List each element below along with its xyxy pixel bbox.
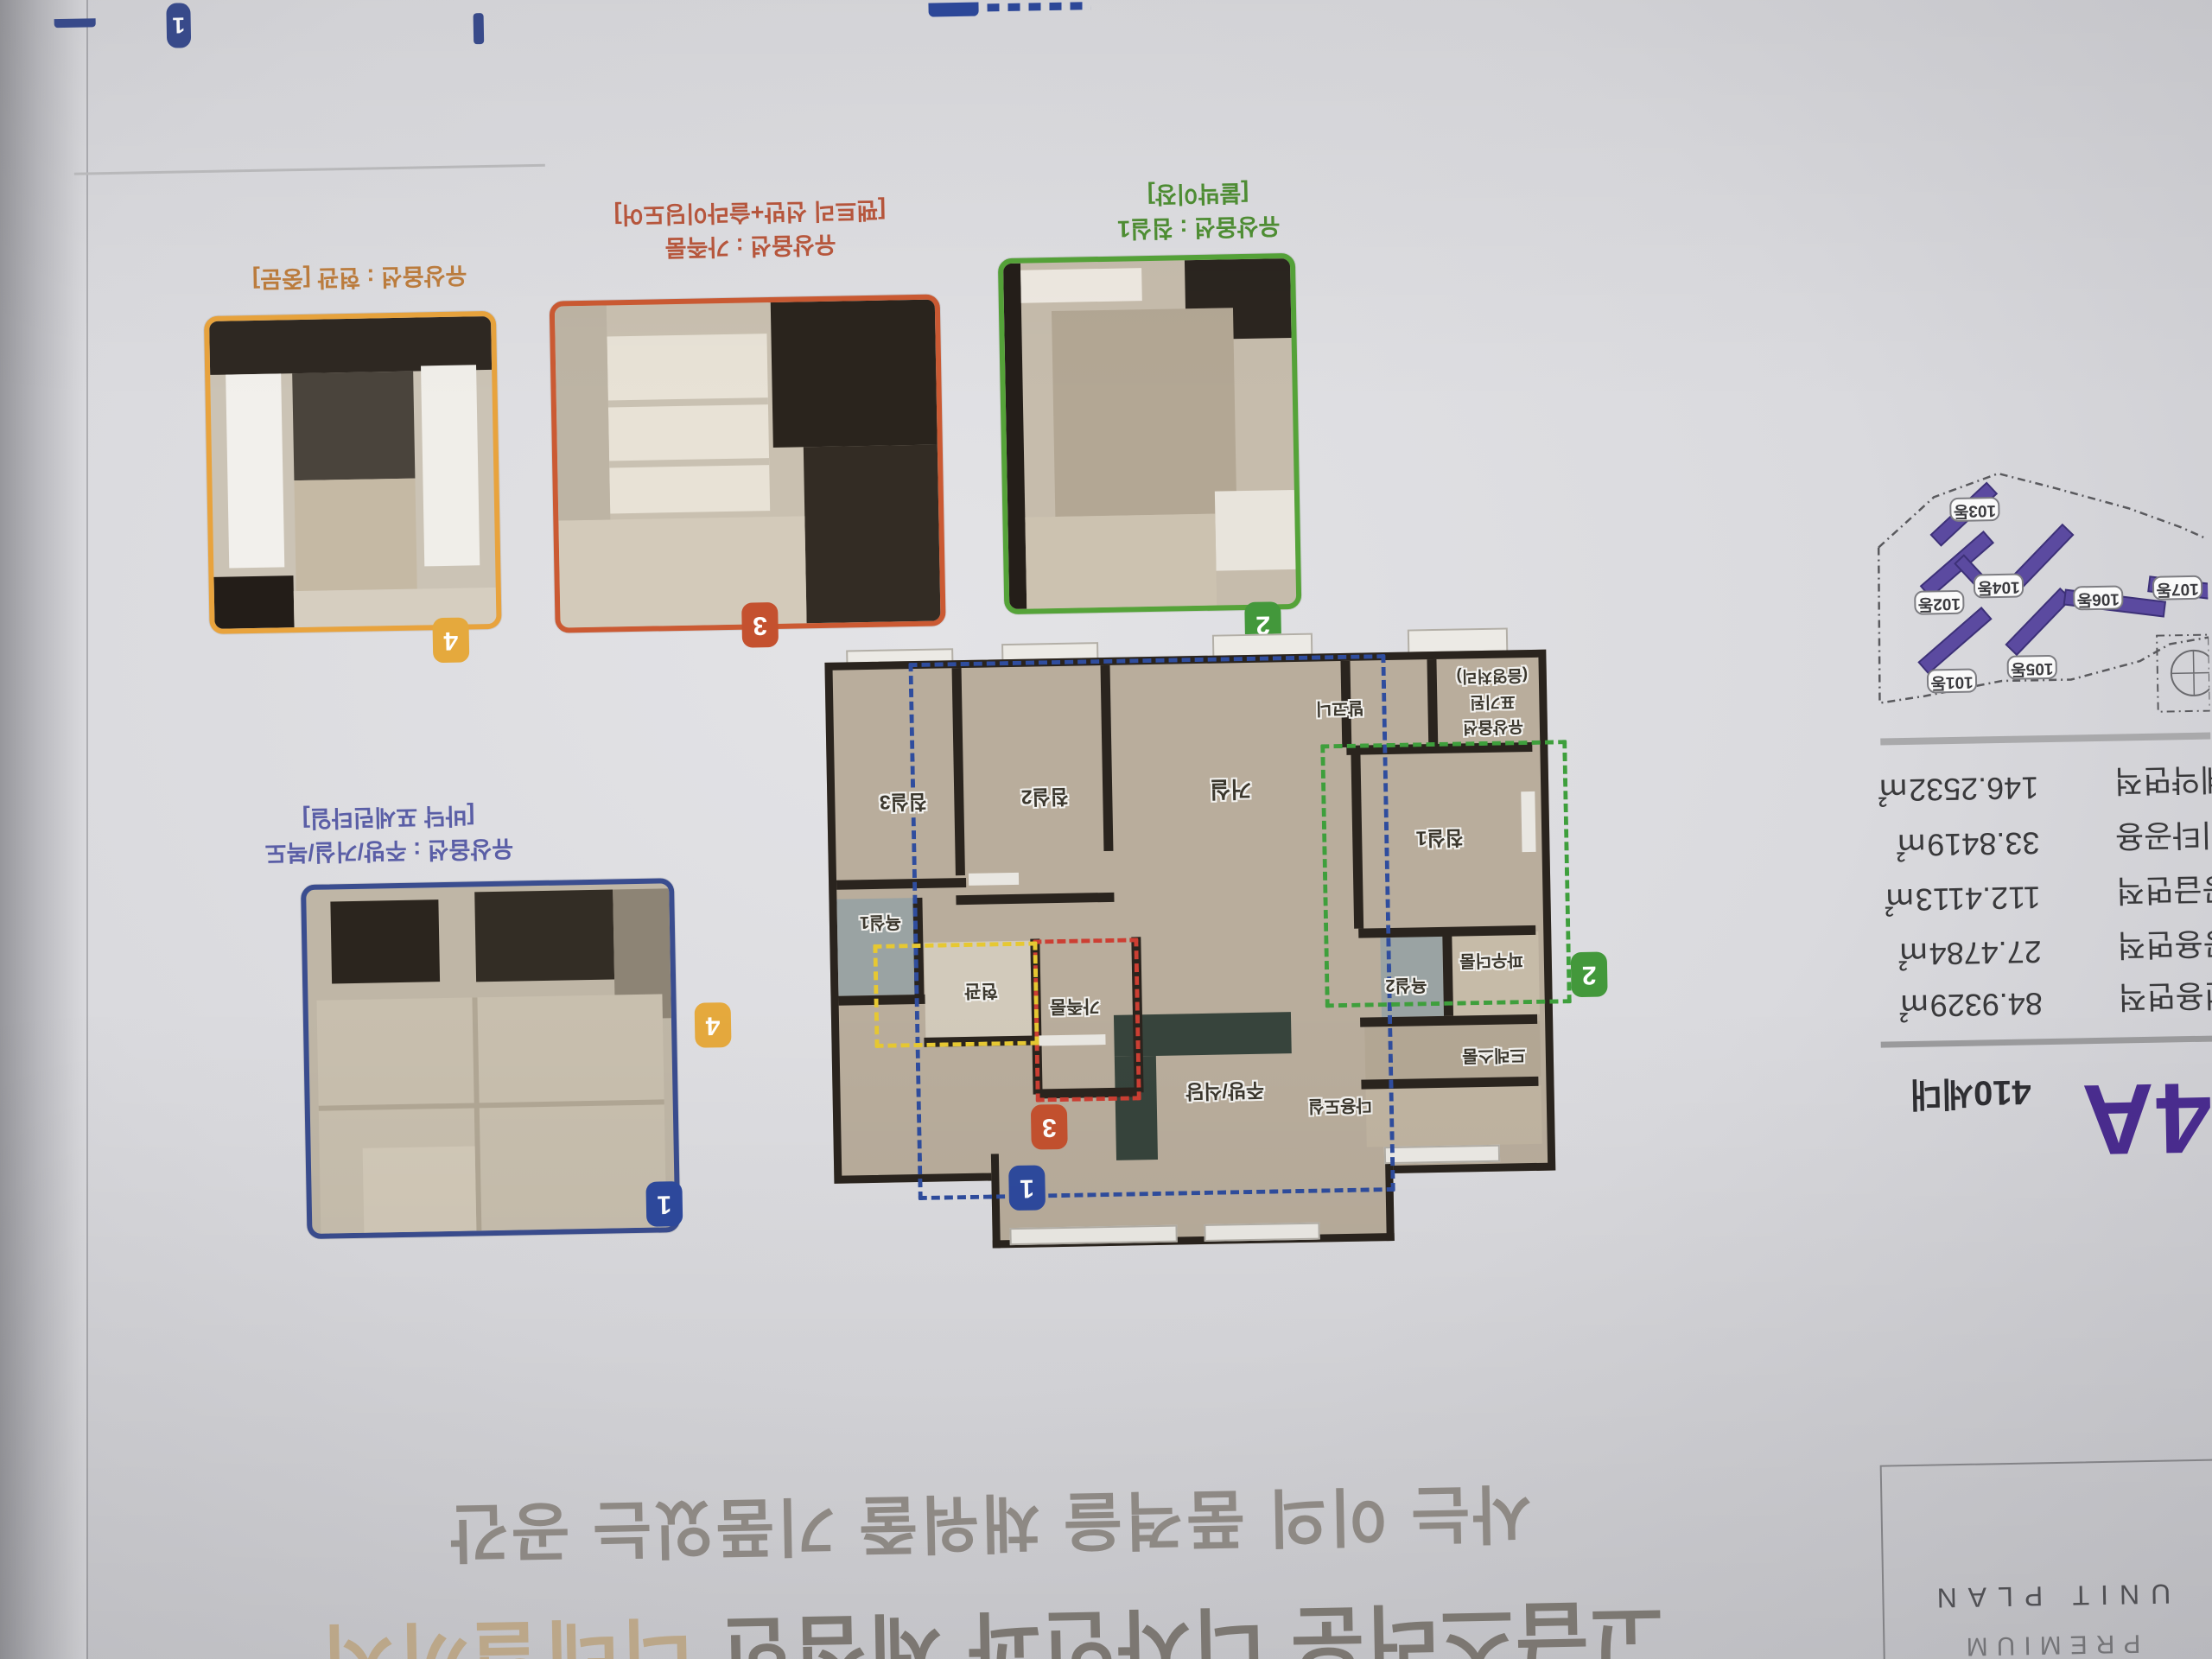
region-badge-3: 3 [1031, 1104, 1068, 1150]
photo-bedroom1-detail [1052, 308, 1236, 517]
plan-option-annotation: 유상옵션 표기된 (음영처리) [1419, 661, 1567, 740]
unit-plan-title: UNIT PLAN [1892, 1577, 2204, 1615]
photo-badge-1: 1 [645, 1181, 683, 1227]
area-value: 27.4784㎡ [1825, 931, 2042, 981]
photo-badge-1-label: 1 [657, 1190, 671, 1218]
room-label-dress: 드레스룸 [1416, 1043, 1573, 1071]
building-pill-103: 103동 [1949, 497, 2000, 522]
building-pill-101: 101동 [1927, 669, 1978, 694]
window-strip [1009, 1225, 1177, 1246]
site-boundary [1878, 470, 2207, 548]
top-edge-dashes [987, 2, 1090, 11]
area-label: 공용면적 [2015, 923, 2212, 972]
area-label: 기타공용 [2013, 814, 2212, 863]
section-divider-rule [74, 164, 545, 175]
area-label: 전용면적 [2016, 975, 2212, 1024]
photo-entrance-detail [421, 365, 480, 566]
region-badge-2: 2 [1571, 951, 1608, 997]
caption-bedroom1-line1: 유상옵션 : 침실1 [1052, 207, 1346, 246]
caption-entrance-option: 유상옵션 : 현관 [중문] [217, 257, 503, 296]
photo-badge-3: 3 [741, 602, 779, 648]
photo-floor-detail [330, 899, 440, 983]
photo-familyroom-detail [607, 334, 770, 513]
room-label-bed3: 침실3 [825, 788, 982, 820]
window-strip [1204, 1223, 1319, 1242]
area-label: 계약면적 [2012, 759, 2212, 808]
photo-frame-floor [301, 878, 680, 1239]
top-edge-badge: 1 [166, 3, 191, 48]
photo-bedroom1-detail [1215, 490, 1296, 571]
building-pill-102: 102동 [1914, 590, 1965, 615]
room-label-living: 거실 [1153, 773, 1309, 808]
photo-badge-3-label: 3 [753, 611, 767, 639]
table-divider [1881, 1036, 2212, 1048]
top-edge-fragment-bar [54, 18, 96, 28]
caption-entrance-line1: 유상옵션 : 현관 [중문] [217, 257, 503, 296]
caption-bedroom1-line2: [붙박이장] [1051, 174, 1345, 213]
building-pill-105: 105동 [2006, 655, 2057, 680]
plan-annotation-line3: (음영처리) [1419, 661, 1567, 690]
building-pill-104: 104동 [1974, 573, 2024, 598]
caption-familyroom-option: 유상옵션 : 가족룸 [팬트리 선반+슬라이딩도어] [551, 191, 950, 266]
unit-code: 84A [2009, 1058, 2212, 1179]
top-edge-badge-label: 1 [172, 12, 185, 38]
brochure-page-photo: 1 유상옵션 : 현관 [중문] 4 유상옵션 : 가족룸 [팬트리 선반+슬라… [0, 0, 2212, 1659]
caption-floor-option: 유상옵션 : 주방/거실/복도 [바닥 포세린타일] [198, 796, 579, 870]
photo-frame-bedroom1 [998, 253, 1301, 614]
photo-floor-detail [474, 889, 614, 982]
area-value: 112.4113㎡ [1824, 877, 2041, 926]
region-badge-1-label: 1 [1020, 1174, 1034, 1203]
area-label: 공급면적 [2014, 868, 2212, 918]
building-pill-106: 106동 [2073, 585, 2124, 610]
area-value: 146.2532㎡ [1822, 767, 2039, 817]
photo-badge-4-label: 4 [443, 626, 458, 655]
floor-plan: 침실3 침실2 거실 욕실1 발코니 침실1 파우더룸 욕실2 드레스룸 다용도… [822, 626, 1593, 1258]
region-badge-4-label: 4 [705, 1011, 720, 1039]
photo-familyroom-detail [771, 300, 938, 448]
room-label-bed1: 침실1 [1362, 823, 1518, 855]
headline-line1: 사는 이의 품격을 채워줄 기품있는 공간 [384, 1471, 1595, 1586]
caption-floor-line1: 유상옵션 : 주방/거실/복도 [199, 829, 580, 870]
room-label-entrance: 현관 [903, 977, 1059, 1006]
photo-entrance-detail [213, 575, 294, 629]
region-badge-4: 4 [695, 1002, 732, 1048]
photo-entrance-detail [292, 372, 415, 481]
room-label-bath1: 욕실1 [803, 910, 959, 938]
region-badge-3-label: 3 [1042, 1113, 1057, 1141]
unit-plan-subtitle: PREMIUM [1893, 1627, 2205, 1659]
building-pill-107: 107동 [2152, 575, 2203, 601]
top-edge-fragment-shape [928, 3, 978, 17]
region-badge-1: 1 [1008, 1165, 1046, 1211]
photo-badge-4: 4 [432, 617, 469, 663]
headline-line2: 고급스러운 디자인과 세심한 디테일까지 [213, 1582, 1770, 1659]
area-value: 84.9329㎡ [1826, 983, 2043, 1033]
room-label-kitchen: 주방/식당 [1147, 1077, 1303, 1109]
unit-households: 410세대 [1815, 1070, 2031, 1124]
plan-annotation-line2: 표기된 [1419, 687, 1567, 715]
room-label-powder: 파우더룸 [1414, 948, 1570, 976]
unit-plan-box: UNIT PLAN PREMIUM [1880, 1459, 2212, 1659]
photo-frame-familyroom [550, 294, 946, 632]
photo-familyroom-detail [804, 445, 941, 624]
photo-floor-detail [363, 1146, 477, 1232]
room-label-balcony: 발코니 [1262, 696, 1418, 723]
top-edge-fragment-mark [474, 13, 485, 44]
caption-bedroom1-option: 유상옵션 : 침실1 [붙박이장] [1051, 174, 1345, 246]
headline-line2-prefix: 고급스러운 디자인과 세심한 [693, 1590, 1664, 1659]
room-label-bath2: 욕실2 [1328, 973, 1484, 1001]
room-label-bed2: 침실2 [967, 783, 1123, 815]
plan-annotation-line1: 유상옵션 [1420, 712, 1567, 741]
caption-floor-line2: [바닥 포세린타일] [198, 796, 579, 836]
photo-entrance-detail [226, 373, 284, 568]
headline-line2-highlight: 디테일까지 [319, 1608, 695, 1659]
photo-bedroom1-detail [1020, 268, 1142, 303]
region-badge-2-label: 2 [1582, 961, 1597, 989]
photo-familyroom-detail [555, 305, 611, 520]
photo-frame-entrance [204, 311, 502, 634]
area-value: 33.8419㎡ [1823, 823, 2040, 872]
window-strip [1384, 1145, 1500, 1164]
photo-bedroom1-detail [1003, 264, 1027, 609]
photo-bedroom1-detail [1025, 514, 1217, 609]
photo-entrance-detail [294, 479, 416, 592]
